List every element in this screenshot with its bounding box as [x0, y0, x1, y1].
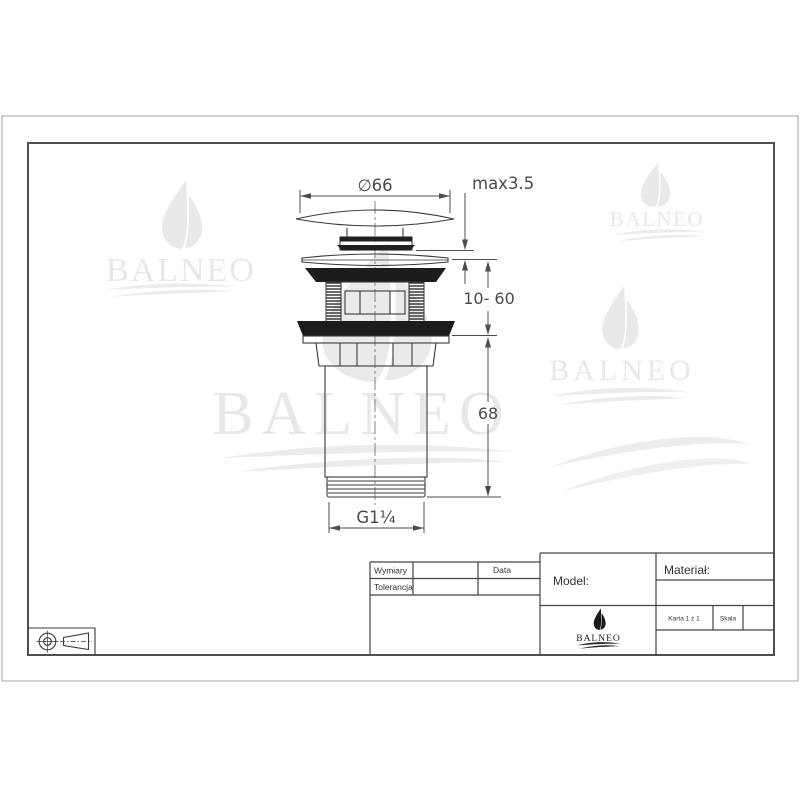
dim-diameter-label: ∅66: [357, 176, 392, 195]
dim-max-label: max3.5: [472, 174, 534, 193]
arrowhead-icon: [329, 525, 340, 531]
drawing-page: BALNEO BALNEO BALNEO BALNEO: [0, 0, 800, 800]
balneo-flame-icon: [594, 608, 606, 630]
projection-symbol: [28, 628, 95, 655]
wave-swoosh-icon: [613, 229, 707, 241]
bottom-thread: [327, 477, 425, 497]
arrowhead-icon: [413, 525, 424, 531]
dim-clamp-label: 10- 60: [463, 289, 515, 308]
upper-gasket-block: [337, 237, 415, 251]
watermark-brand-text: BALNEO: [212, 380, 511, 448]
balneo-flame-icon: [641, 163, 671, 208]
watermark-top-left: BALNEO: [104, 180, 256, 297]
watermark-top-right: BALNEO: [610, 163, 707, 242]
balneo-logo: BALNEO: [576, 608, 621, 648]
wave-swoosh-icon: [549, 388, 690, 405]
balneo-flame-icon: [162, 180, 202, 249]
arrowhead-icon: [485, 325, 491, 336]
wave-swoosh-icon: [560, 458, 752, 492]
model-label: Model:: [553, 574, 589, 588]
lower-seal-band: [297, 321, 455, 336]
material-label: Materiał:: [664, 563, 710, 577]
wave-swoosh-icon: [221, 445, 515, 472]
watermark-mid-right: BALNEO: [549, 286, 695, 405]
dims-row-label: Wymiary: [374, 566, 408, 576]
arrowhead-icon: [485, 486, 491, 497]
watermark-brand-text: BALNEO: [610, 207, 704, 231]
rubber-seal-wedge: [305, 268, 446, 282]
dim-length-label: 68: [478, 404, 498, 423]
title-block: Wymiary Tolerancja Data Model: Materiał:…: [370, 553, 774, 655]
tolerance-row-label: Tolerancja: [374, 582, 413, 592]
balneo-flame-icon: [602, 286, 639, 349]
technical-drawing-canvas: BALNEO BALNEO BALNEO BALNEO: [0, 0, 800, 800]
sheet-label: Karta 1 z 1: [668, 616, 700, 623]
dim-clamp-range: 10- 60: [452, 261, 515, 336]
scale-label: Skala: [720, 616, 737, 623]
date-column-label: Data: [493, 565, 511, 575]
watermark-brand-text: BALNEO: [549, 354, 695, 387]
arrowhead-icon: [462, 240, 468, 251]
arrowhead-icon: [300, 193, 311, 199]
watermark-right-swoosh: [548, 437, 752, 492]
dim-thread: G1¼: [329, 502, 424, 533]
arrowhead-icon: [439, 193, 450, 199]
dim-max-height: max3.5: [416, 174, 534, 284]
dim-thread-label: G1¼: [356, 508, 395, 527]
